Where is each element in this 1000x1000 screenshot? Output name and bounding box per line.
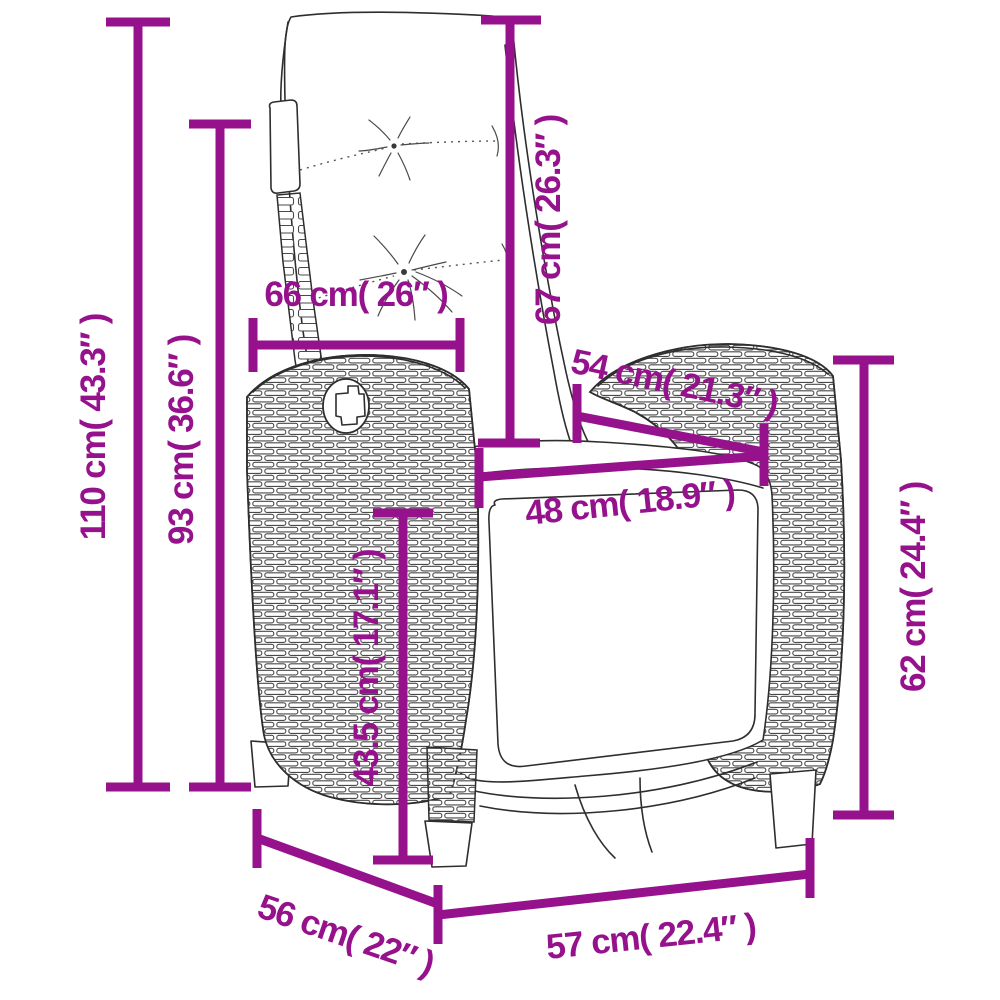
dim-total-height-label: 110 cm( 43.3″ ) — [74, 314, 113, 540]
dim-armrest-height: 62 cm( 24.4″ ) — [833, 360, 933, 815]
dim-backrest-height-label: 93 cm( 36.6″ ) — [162, 335, 201, 545]
dim-backrest-height: 93 cm( 36.6″ ) — [162, 124, 251, 787]
dim-seat-height-label: 43.5 cm( 17.1″ ) — [347, 550, 386, 787]
dimension-diagram: 110 cm( 43.3″ ) 93 cm( 36.6″ ) 66 cm( 26… — [0, 0, 1000, 1000]
dim-front-width-label: 57 cm( 22.4″ ) — [544, 906, 757, 967]
dim-back-cushion-width-label: 66 cm( 26″ ) — [264, 275, 447, 314]
front-left-leg — [425, 747, 477, 867]
dim-side-depth-label: 56 cm( 22″ ) — [253, 887, 439, 984]
recline-handle — [323, 379, 369, 433]
dim-total-height: 110 cm( 43.3″ ) — [74, 22, 170, 787]
dim-side-depth: 56 cm( 22″ ) — [253, 809, 439, 983]
diagram-canvas: 110 cm( 43.3″ ) 93 cm( 36.6″ ) 66 cm( 26… — [0, 0, 1000, 1000]
dim-back-cushion-height-label: 67 cm( 26.3″ ) — [529, 115, 568, 325]
dim-front-width: 57 cm( 22.4″ ) — [438, 838, 810, 967]
front-right-foot — [770, 770, 816, 848]
dim-armrest-height-label: 62 cm( 24.4″ ) — [894, 482, 933, 692]
